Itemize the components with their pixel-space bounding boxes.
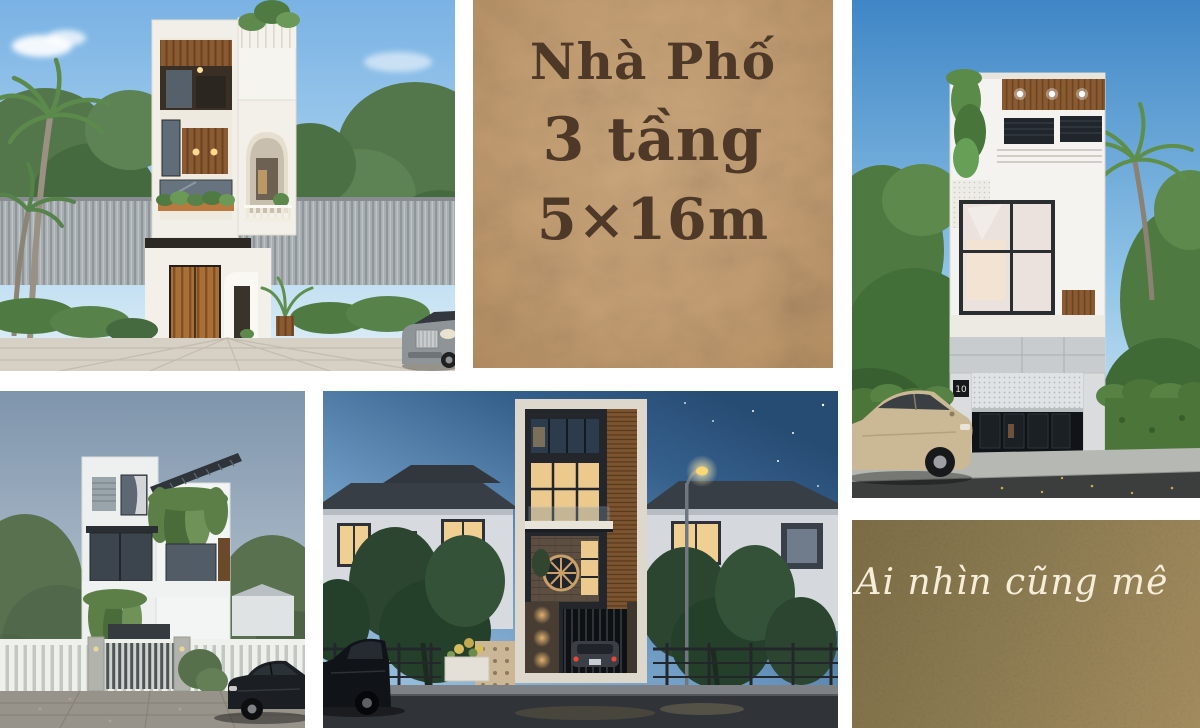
slat-gate — [104, 643, 174, 689]
caption-text-block: Ai nhìn cũng mê — [852, 520, 1200, 603]
house-number: 10 — [955, 385, 967, 395]
garaged-car — [571, 641, 619, 667]
townhouse-street-illustration: 10 — [852, 0, 1200, 498]
top-floor — [160, 40, 232, 110]
house-facade: 10 — [946, 69, 1105, 455]
metal-slat-screens — [1004, 116, 1102, 144]
house-number-plate: 10 — [953, 380, 969, 397]
mid-floor — [160, 120, 232, 202]
ground-floor — [145, 248, 271, 343]
main-window — [959, 200, 1055, 315]
first-floor — [531, 536, 599, 602]
photo-top-left-townhouse — [0, 0, 455, 371]
caption-text: Ai nhìn cũng mê — [852, 520, 1186, 603]
title-panel: Nhà Phố 3 tầng 5×16m — [473, 0, 833, 368]
roller-shutter — [972, 373, 1083, 410]
townhouse-dusk-illustration — [323, 391, 838, 728]
driveway — [0, 338, 455, 371]
title-line-storeys: 3 tầng — [543, 107, 764, 173]
grey-panel-band — [950, 337, 1105, 373]
townhouse-overcast-illustration — [0, 391, 305, 728]
title-line-house-type: Nhà Phố — [530, 34, 776, 89]
photo-bottom-center-townhouse — [323, 391, 838, 728]
caption-panel: Ai nhìn cũng mê — [852, 520, 1200, 728]
street — [323, 685, 838, 728]
ground-floor — [525, 602, 637, 673]
distant-house — [232, 596, 294, 636]
title-line-dimensions: 5×16m — [537, 189, 769, 252]
townhouse-day-illustration — [0, 0, 455, 371]
top-glass-band — [531, 419, 599, 453]
photo-top-right-townhouse: 10 — [852, 0, 1200, 498]
title-text-block: Nhà Phố 3 tầng 5×16m — [473, 0, 833, 252]
ground-floor: 10 — [950, 373, 1105, 453]
photo-bottom-left-townhouse — [0, 391, 305, 728]
collage-canvas: Nhà Phố 3 tầng 5×16m — [0, 0, 1200, 728]
